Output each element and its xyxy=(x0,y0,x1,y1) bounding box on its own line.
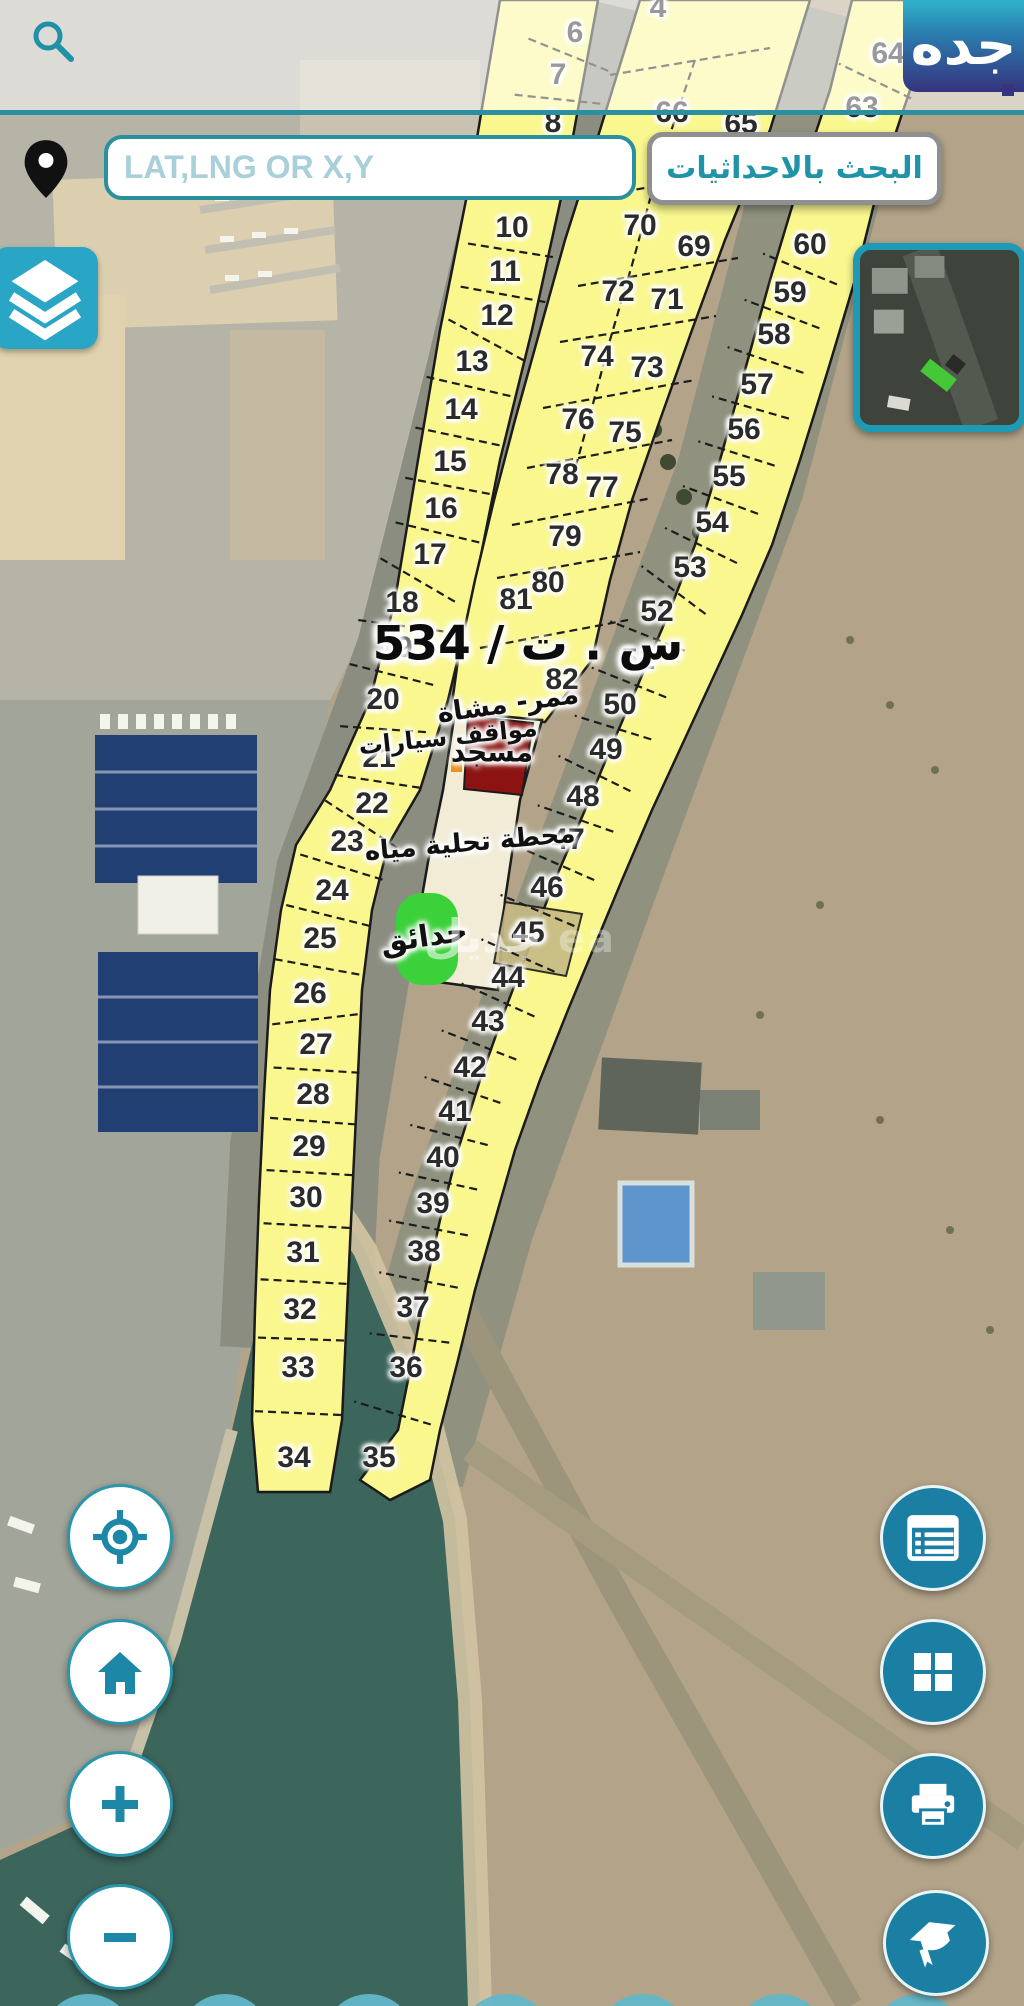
mosque-building[interactable] xyxy=(464,716,533,795)
parcel-number[interactable]: 57 xyxy=(740,368,773,402)
parcel-number[interactable]: 13 xyxy=(455,345,488,379)
parcel-number[interactable]: 38 xyxy=(407,1235,440,1269)
parcel-number[interactable]: 32 xyxy=(283,1293,316,1327)
parcel-number[interactable]: 43 xyxy=(471,1005,504,1039)
search-input[interactable] xyxy=(104,135,636,200)
parcel-number[interactable]: 31 xyxy=(286,1236,319,1270)
layers-icon xyxy=(7,255,83,341)
parcel-number[interactable]: 40 xyxy=(426,1141,459,1175)
parcel-number[interactable]: 76 xyxy=(561,403,594,437)
parcel-number[interactable]: 70 xyxy=(623,209,656,243)
parcel-number[interactable]: 34 xyxy=(277,1441,310,1475)
minimap-image xyxy=(860,250,1019,425)
parcel-number[interactable]: 81 xyxy=(499,583,532,617)
gps-locate-icon xyxy=(91,1508,149,1566)
white-building xyxy=(138,876,218,934)
zoom-out-button[interactable] xyxy=(67,1884,173,1990)
table-list-icon xyxy=(905,1513,961,1563)
parcel-number[interactable]: 28 xyxy=(296,1078,329,1112)
parcel-number[interactable]: 52 xyxy=(640,595,673,629)
search-icon[interactable] xyxy=(28,16,78,66)
parcel-number[interactable]: 21 xyxy=(362,741,395,775)
parcel-table-button[interactable] xyxy=(880,1485,986,1591)
grid-icon xyxy=(909,1648,957,1696)
header-bar xyxy=(0,0,1024,115)
parcel-number[interactable]: 59 xyxy=(773,276,806,310)
parcel-number[interactable]: 18 xyxy=(385,586,418,620)
locate-button[interactable] xyxy=(67,1484,173,1590)
parcel-number[interactable]: 29 xyxy=(292,1130,325,1164)
parcel-number[interactable]: 44 xyxy=(491,961,524,995)
building xyxy=(598,1057,702,1134)
parcel-number[interactable]: 72 xyxy=(601,275,634,309)
app-logo: جده xyxy=(903,0,1024,92)
parcel-number[interactable]: 56 xyxy=(727,413,760,447)
parcel-number[interactable]: 14 xyxy=(444,393,477,427)
parcel-number[interactable]: 55 xyxy=(712,460,745,494)
parcel-number[interactable]: 22 xyxy=(355,787,388,821)
building xyxy=(753,1272,825,1330)
education-button[interactable] xyxy=(883,1890,989,1996)
parcel-number[interactable]: 58 xyxy=(757,318,790,352)
parcel-number[interactable]: 26 xyxy=(293,977,326,1011)
map-app: 6781011121314151617181920212223242526272… xyxy=(0,0,1024,2006)
parcel-number[interactable]: 35 xyxy=(362,1441,395,1475)
parcel-number[interactable]: 41 xyxy=(438,1095,471,1129)
parcel-number[interactable]: 16 xyxy=(424,492,457,526)
parcel-number[interactable]: 36 xyxy=(389,1351,422,1385)
parcel-number[interactable]: 33 xyxy=(281,1351,314,1385)
parcel-number[interactable]: 79 xyxy=(548,520,581,554)
parcel-number[interactable]: 37 xyxy=(396,1291,429,1325)
printer-icon xyxy=(906,1781,960,1831)
parcel-number[interactable]: 39 xyxy=(416,1187,449,1221)
parcel-number[interactable]: 46 xyxy=(530,871,563,905)
parcel-number[interactable]: 51 xyxy=(621,643,654,677)
parcel-number[interactable]: 48 xyxy=(566,780,599,814)
apps-grid-button[interactable] xyxy=(880,1619,986,1725)
parcel-number[interactable]: 69 xyxy=(677,230,710,264)
print-button[interactable] xyxy=(880,1753,986,1859)
parcel-number[interactable]: 17 xyxy=(413,538,446,572)
parcel-number[interactable]: 42 xyxy=(453,1051,486,1085)
parcel-number[interactable]: 50 xyxy=(603,688,636,722)
building xyxy=(700,1090,760,1130)
parcel-number[interactable]: 30 xyxy=(289,1181,322,1215)
parcel-number[interactable]: 74 xyxy=(580,340,613,374)
orange-structure xyxy=(466,708,480,717)
parcel-number[interactable]: 53 xyxy=(673,551,706,585)
parcel-number[interactable]: 27 xyxy=(299,1028,332,1062)
warehouse xyxy=(230,330,325,560)
orange-structure xyxy=(451,757,462,772)
location-pin-icon xyxy=(22,138,70,200)
logo-dot xyxy=(1002,84,1014,96)
parcel-number[interactable]: 15 xyxy=(433,445,466,479)
parcel-number[interactable]: 19 xyxy=(379,631,412,665)
parcel-number[interactable]: 82 xyxy=(545,663,578,697)
garden-area[interactable] xyxy=(396,893,458,985)
minimap[interactable] xyxy=(853,243,1024,432)
parcel-number[interactable]: 24 xyxy=(315,874,348,908)
parcel-number[interactable]: 10 xyxy=(495,211,528,245)
graduation-cap-icon xyxy=(908,1915,964,1971)
parcel-number[interactable]: 73 xyxy=(630,351,663,385)
home-icon xyxy=(92,1646,148,1698)
parcel-number[interactable]: 54 xyxy=(695,506,728,540)
parcel-number[interactable]: 75 xyxy=(608,416,641,450)
pool xyxy=(620,1183,692,1265)
parcel-number[interactable]: 77 xyxy=(585,471,618,505)
parcel-number[interactable]: 25 xyxy=(303,922,336,956)
parcel-number[interactable]: 49 xyxy=(589,733,622,767)
plus-icon xyxy=(96,1780,144,1828)
parcel-number[interactable]: 23 xyxy=(330,825,363,859)
search-by-coords-button[interactable]: البحث بالاحداثيات xyxy=(647,132,942,205)
parcel-number[interactable]: 80 xyxy=(531,566,564,600)
parcel-number[interactable]: 12 xyxy=(480,299,513,333)
layers-button[interactable] xyxy=(0,247,98,349)
parcel-number[interactable]: 20 xyxy=(366,683,399,717)
minus-icon xyxy=(96,1913,144,1961)
zoom-in-button[interactable] xyxy=(67,1751,173,1857)
parcel-number[interactable]: 60 xyxy=(793,228,826,262)
parcel-number[interactable]: 71 xyxy=(650,283,683,317)
logo-text: جده xyxy=(911,18,1017,74)
parcel-number[interactable]: 45 xyxy=(511,916,544,950)
parcel-number[interactable]: 47 xyxy=(551,823,584,857)
parcel-number[interactable]: 78 xyxy=(545,458,578,492)
parcel-number[interactable]: 11 xyxy=(489,255,521,289)
home-button[interactable] xyxy=(67,1619,173,1725)
